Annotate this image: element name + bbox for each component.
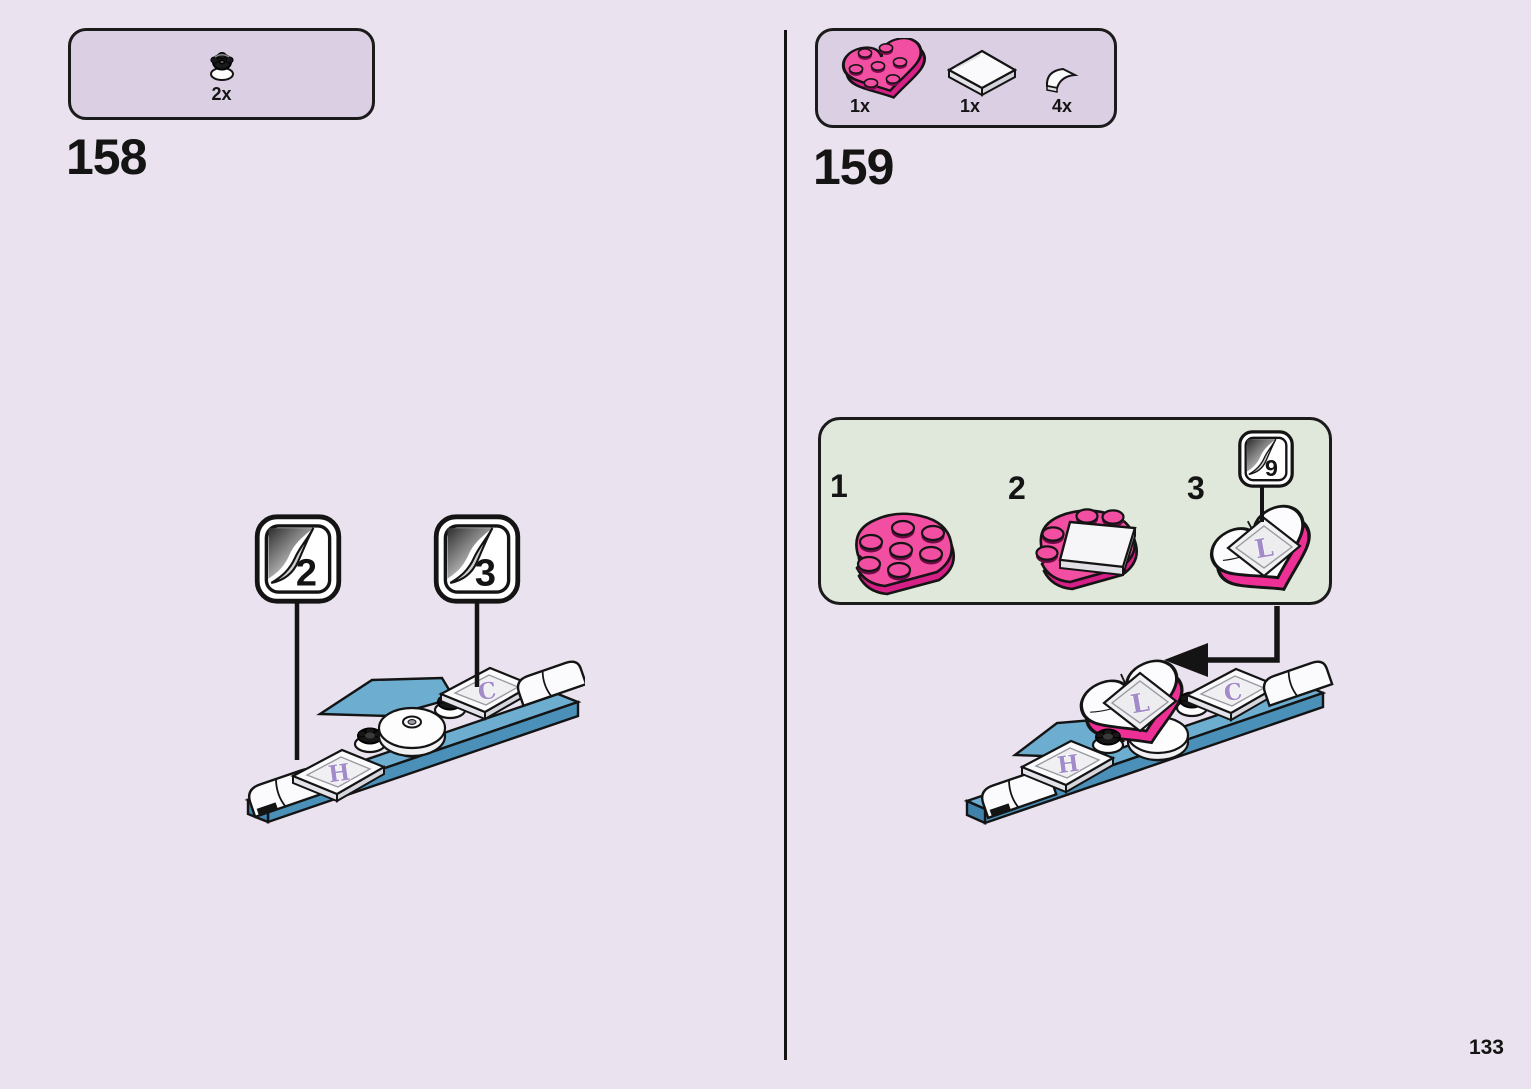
white-tile-icon [946,48,1018,98]
sticker-number-9: 9 [1265,455,1278,481]
part-count-159-2: 1x [950,96,990,117]
white-tile-2x2 [1060,522,1135,575]
blue-wedge [320,678,454,716]
sticker-callout-9: 9 [1238,430,1294,488]
sticker-callout-3: 3 [433,514,521,604]
white-quarter-tile-icon [1042,64,1082,96]
model-step-158: H C [240,650,585,840]
substep-1-heart [843,502,958,597]
part-count-158: 2x [68,84,375,105]
substep-1-label: 1 [830,470,848,502]
letter-c: C [476,677,498,706]
sticker-number-3: 3 [475,553,496,595]
pink-heart-plate-icon [838,38,930,100]
part-count-159-1: 1x [840,96,880,117]
model-step-159: H L [953,643,1338,853]
substep-3-label: 3 [1187,472,1205,504]
letter-h: H [1056,750,1081,780]
step-number-158: 158 [66,132,146,182]
black-flower-plate-on-model [1093,729,1123,753]
white-round-plate [379,708,445,758]
substep-2-heart-tile [1030,500,1140,592]
black-flower-plate-icon [204,48,240,86]
substep-3-heart-finished: L [1208,500,1318,595]
letter-c: C [1222,678,1244,707]
column-divider [784,30,787,1060]
part-count-159-3: 4x [1042,96,1082,117]
step-number-159: 159 [813,142,893,192]
substep-2-label: 2 [1008,472,1026,504]
sticker-number-2: 2 [296,553,317,595]
page-number: 133 [1442,1036,1504,1060]
letter-h: H [327,759,352,789]
instruction-page: { "page": { "number": "133" }, "colors":… [0,0,1531,1089]
sticker-callout-2: 2 [254,514,342,604]
